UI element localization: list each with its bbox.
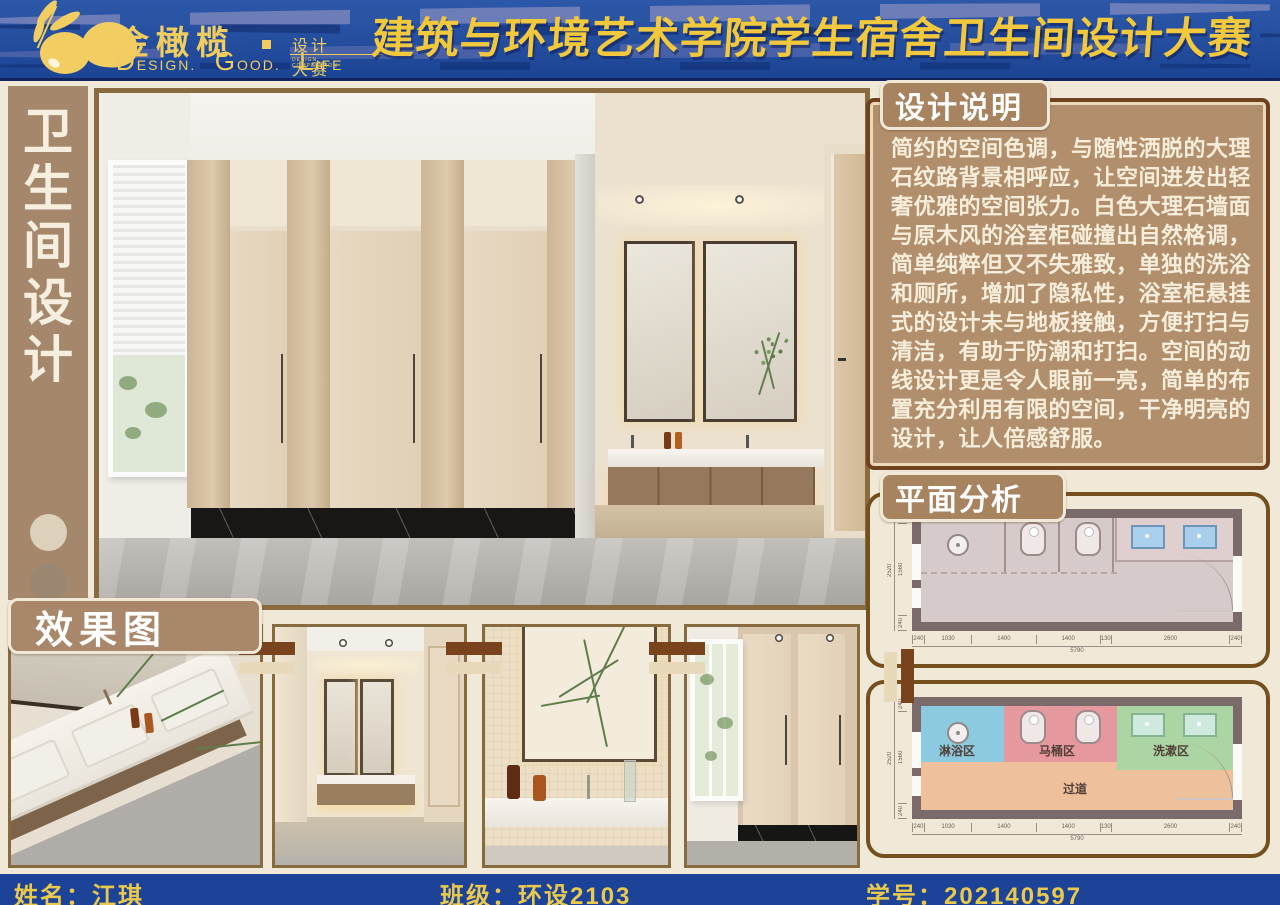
palette-swatch-light <box>30 514 67 551</box>
panel-connector-bar <box>884 652 897 702</box>
design-notes-heading: 设计说明 <box>880 80 1050 130</box>
window-mullion <box>709 644 712 796</box>
concrete-floor <box>99 538 865 605</box>
plan-sink-icon <box>1131 713 1165 737</box>
plan-toilet-icon <box>1075 710 1101 744</box>
plan-left-total-dimension: 2520 <box>886 697 895 819</box>
dim-label: 240 <box>898 804 907 819</box>
stall-upper-band <box>191 160 582 227</box>
render-thumbnail-vanity-corridor <box>272 624 467 868</box>
tagline-word: Good. <box>215 46 281 80</box>
sidebar-char: 计 <box>8 332 88 389</box>
floor-plan-dimensioned <box>912 509 1242 631</box>
black-marble-base <box>738 825 857 842</box>
zone-label: 洗漱区 <box>1153 742 1189 759</box>
thumb-connector-bar <box>446 662 502 674</box>
zone-label: 过道 <box>1063 780 1087 797</box>
plan-window-opening <box>912 776 921 796</box>
page-title: 建筑与环境艺术学院学生宿舍卫生间设计大赛 <box>350 0 1275 70</box>
plan-shower-icon <box>947 722 969 744</box>
plan-partition <box>1058 518 1060 572</box>
plan-sink-icon <box>1183 525 1217 549</box>
dim-label: 1030 <box>924 823 972 832</box>
plan-door-swing-arc <box>1176 554 1233 610</box>
soap-bottle <box>664 432 671 449</box>
stall-pillar <box>287 160 330 508</box>
main-bathroom-scene <box>99 93 865 605</box>
render-scene <box>11 627 260 865</box>
plan-sink-icon <box>1183 713 1217 737</box>
plan-sink-counter <box>1115 518 1233 562</box>
plan-analysis-heading: 平面分析 <box>880 472 1066 522</box>
plan-door-leaf <box>1177 610 1233 612</box>
tagline-word: Life <box>299 46 343 80</box>
plan-window-opening <box>912 544 921 580</box>
id-label: 学号： <box>866 883 944 905</box>
faucet <box>746 435 749 448</box>
panel-connector-bar <box>901 649 914 703</box>
faucet <box>587 775 590 799</box>
plan-left-dimensions: 240 1560 240 <box>898 509 907 631</box>
counter <box>485 798 668 827</box>
stall-door <box>330 231 421 510</box>
stall-door <box>230 231 287 510</box>
plan-toilet-icon <box>1075 522 1101 556</box>
downlight-icon <box>385 639 393 647</box>
floor-plan-zoned: 淋浴区 马桶区 洗漱区 过道 <box>912 697 1242 819</box>
plan-door-leaf <box>1177 798 1233 800</box>
tagline-word: Design. <box>116 46 196 80</box>
dim-label: 1560 <box>898 712 907 804</box>
competition-poster: 金橄榄 设计大赛 DESIGN COMPETITION Design. Good… <box>0 0 1280 905</box>
dim-label: 2600 <box>1111 635 1229 644</box>
render-thumbnail-plant-counter <box>482 624 671 868</box>
dim-label: 1400 <box>971 823 1035 832</box>
window-greenery <box>113 355 185 472</box>
plan-partition <box>1112 518 1114 572</box>
glass-vase <box>624 760 636 802</box>
soap-bottle <box>129 708 139 729</box>
stall-door <box>743 634 791 827</box>
dim-label: 1560 <box>898 524 907 616</box>
floor <box>485 846 668 865</box>
plan-shower-icon <box>947 534 969 556</box>
dim-label: 240 <box>898 616 907 631</box>
class-label: 班级： <box>440 883 518 905</box>
design-notes-panel: 简约的空间色调，与随性洒脱的大理石纹路背景相呼应，让空间进发出轻奢优雅的空间张力… <box>866 98 1270 470</box>
plan-left-dimensions: 240 1560 240 <box>898 697 907 819</box>
window <box>108 160 190 477</box>
floor <box>687 841 857 865</box>
palette-swatch-medium <box>30 564 67 601</box>
faucet <box>631 435 634 448</box>
render-scene <box>687 627 857 865</box>
golden-olive-logo: 金橄榄 设计大赛 DESIGN COMPETITION Design. Good… <box>4 2 344 76</box>
dim-label: 1030 <box>924 635 972 644</box>
plan-floor: 淋浴区 马桶区 洗漱区 过道 <box>921 706 1233 810</box>
soap-bottle <box>533 775 546 801</box>
cove-light <box>597 185 834 226</box>
sidebar-char: 设 <box>8 275 88 332</box>
thumb-connector-bar <box>239 662 295 674</box>
plan-door-opening <box>1233 744 1242 800</box>
sidebar-char: 间 <box>8 218 88 275</box>
thumb-connector-bar <box>649 642 705 655</box>
name-value: 江琪 <box>92 883 144 905</box>
soap-bottle <box>507 765 520 799</box>
dim-label: 130 <box>1100 823 1111 832</box>
stall-pillar <box>187 160 230 508</box>
plan-dashed-line <box>921 572 1117 574</box>
zone-label: 马桶区 <box>1039 742 1075 759</box>
name-label: 姓名： <box>14 883 92 905</box>
render-thumbnail-sink-closeup <box>8 624 263 868</box>
vanity-counter <box>608 449 830 467</box>
dim-label: 240 <box>912 823 924 832</box>
dim-label: 1400 <box>1036 635 1100 644</box>
plan-total-dimension: 5790 <box>912 646 1242 655</box>
footer-bar: 姓名：江琪 班级：环设2103 学号：202140597 <box>0 874 1280 905</box>
stall-pillar <box>421 160 464 508</box>
dim-label: 240 <box>1229 823 1242 832</box>
dim-label: 130 <box>1100 635 1111 644</box>
vanity-mirror <box>360 679 394 775</box>
plan-left-total-dimension: 2520 <box>886 509 895 631</box>
entry-door <box>831 154 865 530</box>
floating-cabinet <box>317 784 415 805</box>
vanity-mirror <box>624 241 695 421</box>
left-wall <box>275 627 307 822</box>
soap-bottle <box>675 432 682 449</box>
plan-bottom-dimensions: 240 1030 1400 1400 130 2600 240 <box>912 823 1242 832</box>
plan-toilet-icon <box>1020 710 1046 744</box>
dim-label: 240 <box>912 635 924 644</box>
plan-floor <box>921 518 1233 622</box>
plan-sink-icon <box>1131 525 1165 549</box>
plan-window-opening <box>912 588 921 608</box>
plan-bottom-dimensions: 240 1030 1400 1400 130 2600 240 <box>912 635 1242 644</box>
plan-window-opening <box>912 732 921 768</box>
render-thumbnail-stalls-window <box>684 624 860 868</box>
zone-label: 淋浴区 <box>939 742 975 759</box>
stall-door <box>798 634 846 827</box>
sidebar-char: 卫 <box>8 104 88 161</box>
black-marble-base <box>191 508 585 539</box>
cove-light <box>313 656 419 675</box>
dim-label: 1400 <box>1036 823 1100 832</box>
student-class: 班级：环设2103 <box>440 876 631 905</box>
plan-total-dimension: 5790 <box>912 834 1242 843</box>
vanity-counter <box>317 775 415 785</box>
logo-tagline: Design. Good. Life <box>116 46 376 80</box>
olive-fruit-icon <box>40 32 90 74</box>
student-name: 姓名：江琪 <box>14 876 144 905</box>
plan-door-opening <box>1233 556 1242 612</box>
main-render-image <box>94 88 870 610</box>
sidebar-vertical-title: 卫 生 间 设 计 <box>8 86 88 600</box>
renders-heading: 效果图 <box>8 598 262 654</box>
class-value: 环设2103 <box>518 883 631 905</box>
vanity-mirror <box>324 679 358 775</box>
render-scene <box>485 627 668 865</box>
sidebar-char: 生 <box>8 161 88 218</box>
partition-wall <box>575 154 595 538</box>
plan-partition <box>1004 518 1006 572</box>
dim-label: 240 <box>1229 635 1242 644</box>
plan-toilet-icon <box>1020 522 1046 556</box>
stall-door <box>464 231 547 510</box>
design-notes-body: 简约的空间色调，与随性洒脱的大理石纹路背景相呼应，让空间进发出轻奢优雅的空间张力… <box>891 134 1252 453</box>
zone-plan-panel: 淋浴区 马桶区 洗漱区 过道 240 1030 1400 1400 130 26… <box>866 680 1270 858</box>
thumb-connector-bar <box>446 642 502 655</box>
render-scene <box>275 627 464 865</box>
floor <box>275 817 464 865</box>
dim-label: 2600 <box>1111 823 1229 832</box>
header-banner: 金橄榄 设计大赛 DESIGN COMPETITION Design. Good… <box>0 0 1280 81</box>
student-id: 学号：202140597 <box>866 876 1082 905</box>
thumb-connector-bar <box>649 662 705 674</box>
dim-label: 1400 <box>971 635 1035 644</box>
id-value: 202140597 <box>944 883 1082 905</box>
